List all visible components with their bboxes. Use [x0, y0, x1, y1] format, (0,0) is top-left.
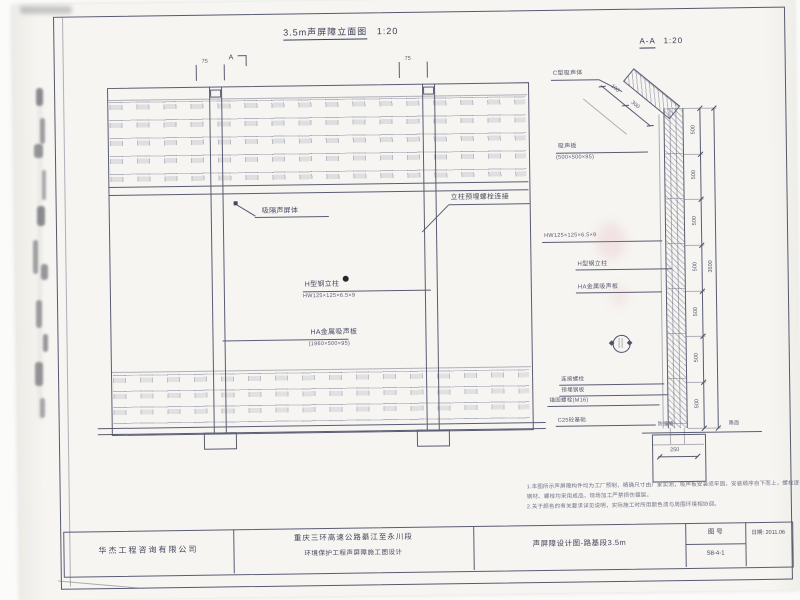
acoustic-panel-pattern-bottom — [113, 369, 530, 425]
label-absorber-spec: (1960×500×95) — [309, 342, 351, 348]
scan-streak-band — [39, 90, 41, 420]
label-top-absorber: C型吸声体 — [553, 70, 583, 76]
label-bolt: 连接螺栓 — [561, 377, 584, 383]
scan-tilt-wrapper: 3.5m声屏障立面图 1:20 A-A 1:20 75 75 A — [0, 0, 800, 600]
anchor-line — [670, 428, 671, 444]
label-embed-plate: 预埋钢板 — [561, 388, 584, 394]
direction-marker-inner — [622, 338, 623, 348]
elevation-view-title: 3.5m声屏障立面图 1:20 — [283, 24, 398, 39]
section-cut-mark-icon — [238, 55, 247, 66]
scanned-drawing-sheet: 3.5m声屏障立面图 1:20 A-A 1:20 75 75 A — [0, 0, 800, 600]
label-panel-body: 吸隔声屏体 — [262, 207, 299, 215]
label-section-column-spec: HW125×125×6.5×9 — [544, 233, 596, 239]
dim-segment: 500 — [691, 125, 697, 134]
label-h-column: H型钢立柱 — [305, 281, 340, 288]
label-column-bolt: 立柱预埋螺栓连接 — [451, 193, 509, 201]
dim-segment: 500 — [692, 170, 698, 179]
direction-marker-inner — [619, 338, 620, 348]
scan-streak — [33, 240, 38, 274]
scan-pink-blemish — [596, 222, 626, 260]
date-value: 日期: 2011.06 — [745, 531, 791, 537]
label-h-column-spec: HW125×125×6.5×9 — [303, 294, 355, 300]
scan-pink-blemish — [610, 285, 628, 307]
elevation-footing-left — [204, 432, 237, 449]
dim-tick — [427, 62, 428, 78]
dim-segment: 500 — [695, 353, 701, 362]
dim-tick — [196, 65, 197, 81]
dim-segment: 500 — [695, 399, 701, 408]
anchor-line — [684, 428, 685, 444]
reference-dot — [343, 276, 349, 282]
scan-streak — [43, 334, 48, 352]
scan-edge-smudge — [20, 6, 72, 14]
sheet-no-label: 图 号 — [685, 529, 745, 536]
section-title-scale: 1:20 — [663, 36, 683, 45]
scan-streak — [41, 264, 48, 280]
dim-75-left: 75 — [202, 60, 208, 66]
dim-segment: 500 — [694, 307, 700, 316]
column-cap-plate-right — [423, 87, 434, 95]
label-section-panel-spec: (500×500×95) — [556, 155, 594, 161]
label-anchor-bolt: 锚固螺栓(M16) — [549, 398, 588, 404]
label-absorber: HA金属吸声板 — [310, 329, 357, 337]
dim-tick — [224, 64, 225, 80]
dim-segment: 500 — [693, 262, 699, 271]
scan-streak — [42, 170, 46, 200]
section-view-title: A-A 1:20 — [639, 36, 683, 46]
sheet-no-value: S8-4-1 — [686, 550, 746, 557]
column-cap-plate-left — [210, 89, 221, 97]
dim-segment: 500 — [693, 216, 699, 225]
section-cut-label: A — [229, 54, 234, 61]
label-section-h-column: H型钢立柱 — [577, 261, 607, 267]
dim-75-right: 75 — [405, 57, 411, 63]
dim-total: 3500 — [709, 260, 715, 272]
dim-footing-width: 250 — [670, 448, 679, 454]
acoustic-panel-pattern-top — [109, 96, 526, 186]
elevation-title-text: 3.5m声屏障立面图 — [283, 26, 367, 40]
label-road-surface: 路面 — [729, 421, 740, 426]
label-section-panel: 吸声板 — [558, 144, 577, 150]
dim-tick — [399, 62, 400, 78]
label-foundation: C25砼基础 — [558, 418, 586, 424]
section-footing — [652, 434, 707, 483]
elevation-footing-right — [417, 429, 450, 446]
elevation-title-scale: 1:20 — [377, 26, 399, 36]
label-barrier-wall: 防撞墙 — [658, 422, 674, 427]
section-title-text: A-A — [639, 36, 655, 48]
